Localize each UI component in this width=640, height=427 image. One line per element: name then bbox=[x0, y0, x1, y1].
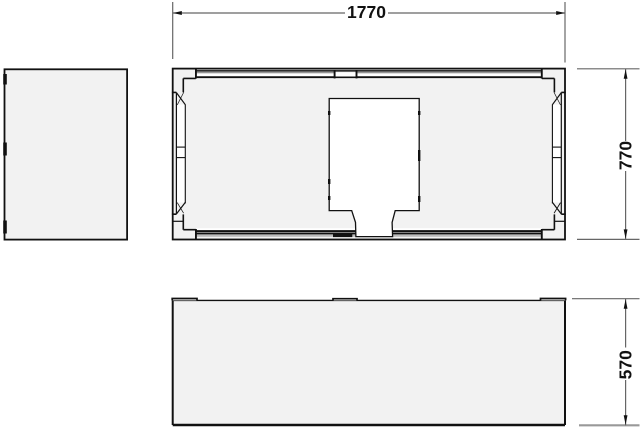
svg-text:1770: 1770 bbox=[347, 2, 386, 22]
svg-text:570: 570 bbox=[616, 350, 636, 379]
svg-text:770: 770 bbox=[616, 141, 636, 170]
